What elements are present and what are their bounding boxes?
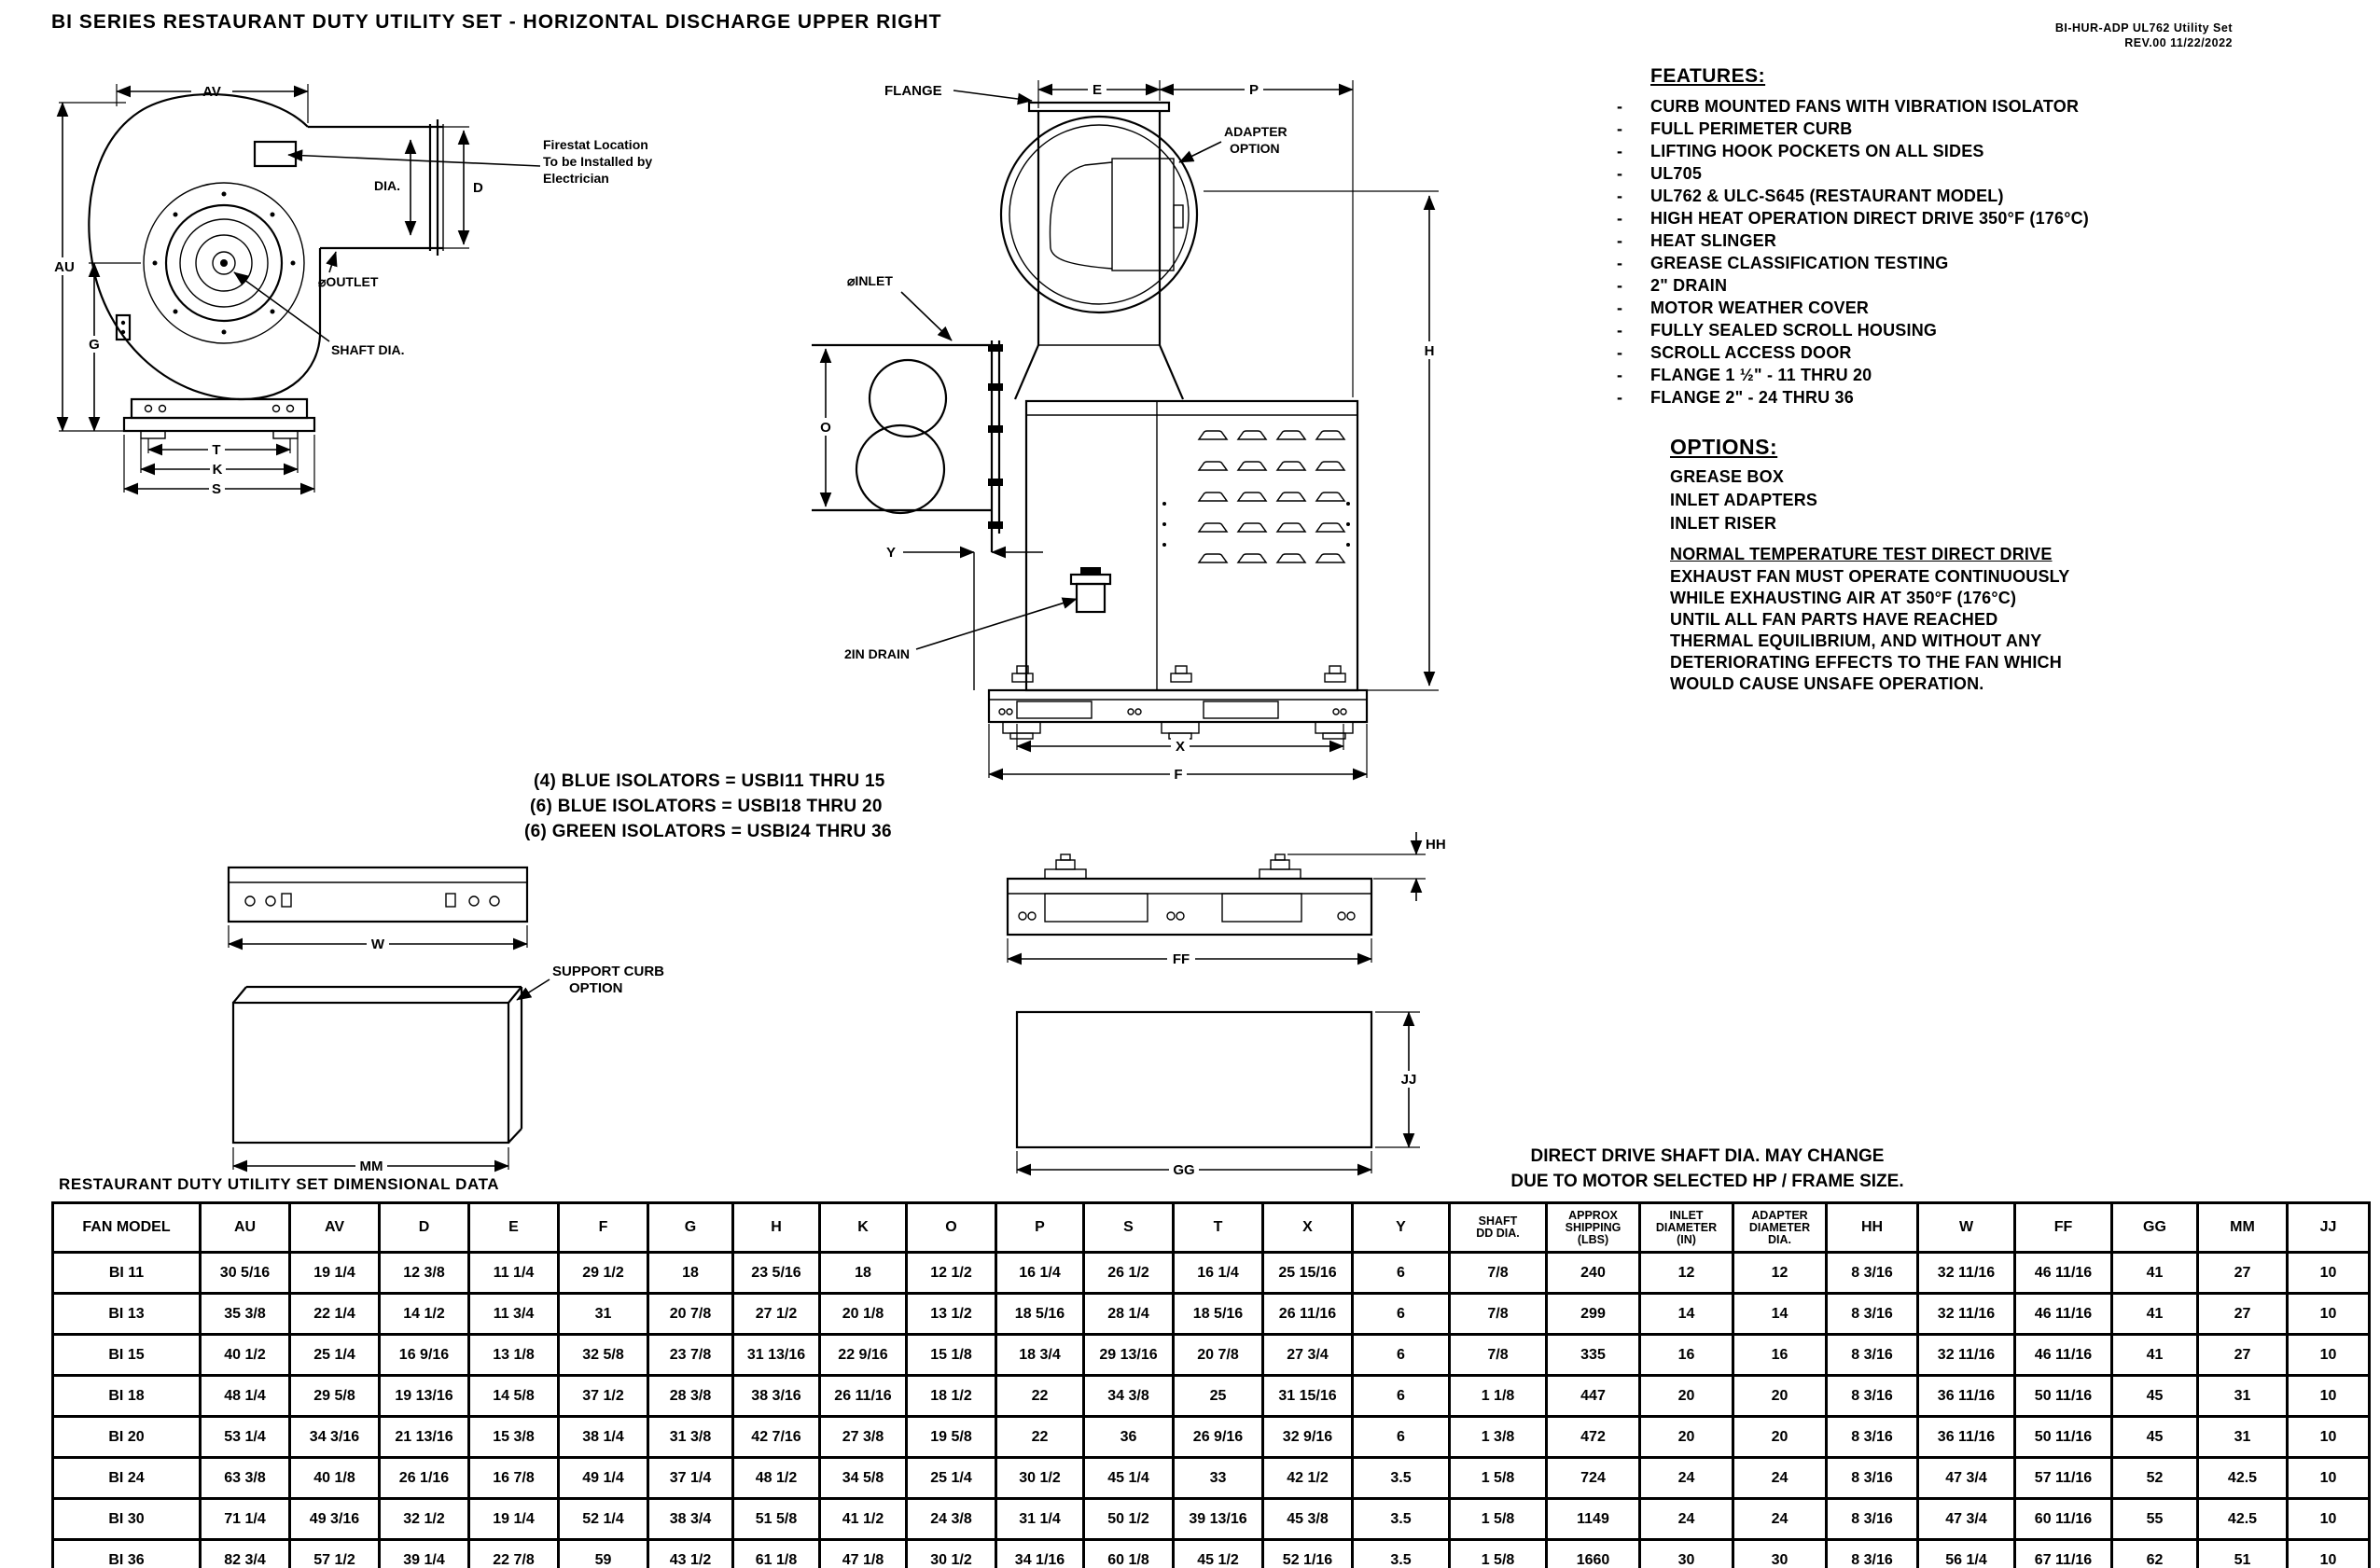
table-caption: RESTAURANT DUTY UTILITY SET DIMENSIONAL …: [59, 1175, 499, 1194]
feature-item: CURB MOUNTED FANS WITH VIBRATION ISOLATO…: [1650, 95, 2079, 118]
col-header-mm: MM: [2198, 1203, 2288, 1253]
table-cell: 16: [1733, 1335, 1827, 1376]
table-cell: 42.5: [2198, 1499, 2288, 1540]
table-cell: 27 3/8: [820, 1417, 907, 1458]
table-cell: 8 3/16: [1827, 1540, 1918, 1568]
table-cell: 6: [1353, 1335, 1450, 1376]
table-cell: 43 1/2: [648, 1540, 733, 1568]
feature-item: GREASE CLASSIFICATION TESTING: [1650, 252, 1948, 274]
temperature-test-note: NORMAL TEMPERATURE TEST DIRECT DRIVE EXH…: [1670, 545, 2286, 695]
flange-label: FLANGE: [884, 83, 942, 99]
table-cell: 28 1/4: [1084, 1294, 1174, 1335]
table-cell: 46 11/16: [2015, 1294, 2112, 1335]
table-cell: 10: [2288, 1253, 2370, 1294]
table-cell: 26 1/2: [1084, 1253, 1174, 1294]
fan-model-cell: BI 24: [53, 1458, 201, 1499]
table-cell: 299: [1547, 1294, 1640, 1335]
col-header-f: F: [559, 1203, 648, 1253]
table-cell: 41: [2112, 1253, 2198, 1294]
table-cell: 19 1/4: [290, 1253, 380, 1294]
table-cell: 53 1/4: [201, 1417, 290, 1458]
inlet-label: ⌀INLET: [847, 273, 893, 288]
table-cell: 51: [2198, 1540, 2288, 1568]
table-cell: 8 3/16: [1827, 1294, 1918, 1335]
note-line: EXHAUST FAN MUST OPERATE CONTINUOUSLY: [1670, 566, 2286, 588]
dim-label-o: O: [820, 420, 831, 436]
dim-h: H: [1204, 191, 1441, 690]
table-cell: 23 5/16: [733, 1253, 820, 1294]
note-line: DETERIORATING EFFECTS TO THE FAN WHICH: [1670, 652, 2286, 673]
table-cell: 1 5/8: [1450, 1499, 1547, 1540]
dim-label-h: H: [1425, 343, 1435, 359]
table-cell: 26 11/16: [820, 1376, 907, 1417]
feature-item: HIGH HEAT OPERATION DIRECT DRIVE 350°F (…: [1650, 207, 2089, 229]
bullet-dash: [1617, 140, 1650, 162]
fan-model-cell: BI 11: [53, 1253, 201, 1294]
table-cell: 45: [2112, 1417, 2198, 1458]
table-cell: 1149: [1547, 1499, 1640, 1540]
feature-item: FULLY SEALED SCROLL HOUSING: [1650, 319, 1937, 341]
bullet-dash: [1617, 297, 1650, 319]
table-cell: 26 9/16: [1174, 1417, 1263, 1458]
table-cell: 57 1/2: [290, 1540, 380, 1568]
dim-label-p: P: [1249, 82, 1259, 98]
table-cell: 8 3/16: [1827, 1335, 1918, 1376]
table-cell: 1 5/8: [1450, 1458, 1547, 1499]
bullet-dash: [1617, 162, 1650, 185]
table-cell: 1 3/8: [1450, 1417, 1547, 1458]
table-row: BI 3682 3/457 1/239 1/422 7/85943 1/261 …: [53, 1540, 2370, 1568]
bullet-dash: [1617, 341, 1650, 364]
col-header-gg: GG: [2112, 1203, 2198, 1253]
table-cell: 71 1/4: [201, 1499, 290, 1540]
table-cell: 50 11/16: [2015, 1376, 2112, 1417]
col-header-p: P: [996, 1203, 1084, 1253]
table-cell: 32 11/16: [1918, 1294, 2015, 1335]
table-cell: 6: [1353, 1376, 1450, 1417]
table-cell: 41 1/2: [820, 1499, 907, 1540]
table-cell: 60 11/16: [2015, 1499, 2112, 1540]
table-cell: 15 1/8: [907, 1335, 996, 1376]
table-cell: 10: [2288, 1417, 2370, 1458]
table-cell: 14: [1640, 1294, 1733, 1335]
table-cell: 26 1/16: [380, 1458, 469, 1499]
table-cell: 30 1/2: [996, 1458, 1084, 1499]
table-cell: 26 11/16: [1263, 1294, 1353, 1335]
table-cell: 335: [1547, 1335, 1640, 1376]
table-cell: 67 11/16: [2015, 1540, 2112, 1568]
col-header-o: O: [907, 1203, 996, 1253]
table-cell: 27 1/2: [733, 1294, 820, 1335]
table-cell: 11 1/4: [469, 1253, 559, 1294]
fan-model-cell: BI 30: [53, 1499, 201, 1540]
table-cell: 31: [2198, 1376, 2288, 1417]
table-cell: 12: [1640, 1253, 1733, 1294]
table-cell: 48 1/2: [733, 1458, 820, 1499]
table-cell: 27: [2198, 1253, 2288, 1294]
table-cell: 45: [2112, 1376, 2198, 1417]
dim-jj: JJ: [1375, 1012, 1422, 1147]
table-cell: 16 7/8: [469, 1458, 559, 1499]
table-cell: 240: [1547, 1253, 1640, 1294]
table-cell: 25: [1174, 1376, 1263, 1417]
feature-item: FLANGE 2" - 24 THRU 36: [1650, 386, 1854, 409]
dim-label-k: K: [213, 462, 223, 478]
bullet-dash: [1617, 252, 1650, 274]
table-cell: 32 11/16: [1918, 1335, 2015, 1376]
note-line: THERMAL EQUILIBRIUM, AND WITHOUT ANY: [1670, 631, 2286, 652]
table-cell: 32 9/16: [1263, 1417, 1353, 1458]
support-curb-callout: SUPPORT CURB OPTION: [517, 964, 664, 1000]
table-cell: 6: [1353, 1294, 1450, 1335]
table-cell: 8 3/16: [1827, 1376, 1918, 1417]
table-cell: 6: [1353, 1417, 1450, 1458]
drain-label: 2IN DRAIN: [844, 646, 910, 661]
col-header-h: H: [733, 1203, 820, 1253]
note-line: UNTIL ALL FAN PARTS HAVE REACHED: [1670, 609, 2286, 631]
table-cell: 36: [1084, 1417, 1174, 1458]
table-cell: 31 1/4: [996, 1499, 1084, 1540]
col-header-adapter-diameter: ADAPTER DIAMETER DIA.: [1733, 1203, 1827, 1253]
table-cell: 14: [1733, 1294, 1827, 1335]
table-cell: 40 1/8: [290, 1458, 380, 1499]
dim-d: D: [443, 127, 483, 248]
dim-label-x: X: [1176, 739, 1185, 755]
document-id: BI-HUR-ADP UL762 Utility Set: [2055, 21, 2233, 35]
fan-model-cell: BI 36: [53, 1540, 201, 1568]
table-cell: 8 3/16: [1827, 1253, 1918, 1294]
outlet-label: ⌀OUTLET: [318, 274, 379, 289]
table-row: BI 1335 3/822 1/414 1/211 3/43120 7/827 …: [53, 1294, 2370, 1335]
bullet-dash: [1617, 319, 1650, 341]
table-cell: 32 11/16: [1918, 1253, 2015, 1294]
table-cell: 3.5: [1353, 1499, 1450, 1540]
table-cell: 29 13/16: [1084, 1335, 1174, 1376]
table-cell: 36 11/16: [1918, 1376, 2015, 1417]
unit-body: [1026, 401, 1357, 690]
features-section: FEATURES: CURB MOUNTED FANS WITH VIBRATI…: [1617, 65, 2270, 409]
dim-label-w: W: [371, 937, 385, 952]
dim-mm: MM: [233, 1147, 508, 1174]
table-cell: 7/8: [1450, 1335, 1547, 1376]
table-cell: 25 1/4: [290, 1335, 380, 1376]
dim-e: E: [1038, 80, 1160, 108]
feature-item: LIFTING HOOK POCKETS ON ALL SIDES: [1650, 140, 1984, 162]
table-cell: 27: [2198, 1335, 2288, 1376]
table-cell: 23 7/8: [648, 1335, 733, 1376]
table-cell: 35 3/8: [201, 1294, 290, 1335]
features-heading: FEATURES:: [1650, 65, 2270, 88]
table-cell: 46 11/16: [2015, 1253, 2112, 1294]
table-cell: 7/8: [1450, 1294, 1547, 1335]
fan-model-cell: BI 15: [53, 1335, 201, 1376]
document-revision: REV.00 11/22/2022: [2055, 35, 2233, 50]
table-cell: 20 1/8: [820, 1294, 907, 1335]
table-cell: 55: [2112, 1499, 2198, 1540]
table-cell: 13 1/8: [469, 1335, 559, 1376]
dim-gg: GG: [1017, 1151, 1371, 1178]
dim-label-d: D: [473, 180, 483, 196]
note-line: WHILE EXHAUSTING AIR AT 350°F (176°C): [1670, 588, 2286, 609]
table-cell: 14 5/8: [469, 1376, 559, 1417]
firestat-callout: Firestat Location To be Installed by Ele…: [255, 137, 652, 186]
table-cell: 19 13/16: [380, 1376, 469, 1417]
table-cell: 49 1/4: [559, 1458, 648, 1499]
table-cell: 42 1/2: [1263, 1458, 1353, 1499]
shaft-dia-label: SHAFT DIA.: [331, 342, 405, 357]
col-header-inlet-diameter: INLET DIAMETER (IN): [1640, 1203, 1733, 1253]
col-header-t: T: [1174, 1203, 1263, 1253]
inlet-callout: ⌀INLET: [847, 273, 952, 340]
louver-vents: [1199, 431, 1344, 562]
table-cell: 46 11/16: [2015, 1335, 2112, 1376]
table-cell: 8 3/16: [1827, 1417, 1918, 1458]
firestat-label-2: To be Installed by: [543, 154, 652, 169]
table-cell: 38 3/4: [648, 1499, 733, 1540]
table-cell: 31 13/16: [733, 1335, 820, 1376]
table-header-row: FAN MODEL AU AV D E F G H K O P S T X Y …: [53, 1203, 2370, 1253]
table-cell: 7/8: [1450, 1253, 1547, 1294]
table-cell: 28 3/8: [648, 1376, 733, 1417]
table-cell: 37 1/2: [559, 1376, 648, 1417]
table-cell: 57 11/16: [2015, 1458, 2112, 1499]
dim-label-jj: JJ: [1401, 1072, 1417, 1088]
adapter-option-label-2: OPTION: [1230, 141, 1280, 156]
table-cell: 472: [1547, 1417, 1640, 1458]
table-cell: 30: [1733, 1540, 1827, 1568]
dim-label-e: E: [1093, 82, 1102, 98]
col-header-fan-model: FAN MODEL: [53, 1203, 201, 1253]
table-cell: 45 3/8: [1263, 1499, 1353, 1540]
col-header-ff: FF: [2015, 1203, 2112, 1253]
table-cell: 10: [2288, 1499, 2370, 1540]
table-cell: 47 1/8: [820, 1540, 907, 1568]
table-cell: 22: [996, 1376, 1084, 1417]
table-cell: 29 5/8: [290, 1376, 380, 1417]
table-cell: 32 5/8: [559, 1335, 648, 1376]
table-cell: 20: [1640, 1376, 1733, 1417]
table-cell: 18: [820, 1253, 907, 1294]
col-header-jj: JJ: [2288, 1203, 2370, 1253]
inlet-assembly: [812, 340, 1003, 552]
table-cell: 16 1/4: [1174, 1253, 1263, 1294]
fan-side-view-drawing: AV: [51, 65, 574, 508]
feature-item: UL705: [1650, 162, 1702, 185]
table-cell: 38 1/4: [559, 1417, 648, 1458]
bullet-dash: [1617, 95, 1650, 118]
isolator-feet: [1045, 854, 1301, 879]
drain-callout: 2IN DRAIN: [844, 599, 1077, 661]
table-cell: 10: [2288, 1335, 2370, 1376]
support-curb-drawing: W SUPPORT CURB OPTION MM: [215, 840, 756, 1185]
support-curb-label-1: SUPPORT CURB: [552, 964, 664, 979]
table-cell: 12 3/8: [380, 1253, 469, 1294]
table-cell: 36 11/16: [1918, 1417, 2015, 1458]
dim-label-dia: DIA.: [374, 178, 400, 193]
adapter-option-label-1: ADAPTER: [1224, 124, 1287, 139]
col-header-shaft-dd-dia: SHAFT DD DIA.: [1450, 1203, 1547, 1253]
table-cell: 13 1/2: [907, 1294, 996, 1335]
table-cell: 18 5/16: [996, 1294, 1084, 1335]
fan-model-cell: BI 13: [53, 1294, 201, 1335]
shaft-dia-note-line-1: DIRECT DRIVE SHAFT DIA. MAY CHANGE: [1437, 1144, 1978, 1169]
curb-rail-drawing: HH FF GG JJ: [970, 821, 1474, 1222]
fan-front-view-drawing: FLANGE E P: [802, 65, 1465, 802]
table-cell: 37 1/4: [648, 1458, 733, 1499]
table-cell: 41: [2112, 1294, 2198, 1335]
fan-model-cell: BI 20: [53, 1417, 201, 1458]
table-cell: 20: [1640, 1417, 1733, 1458]
col-header-s: S: [1084, 1203, 1174, 1253]
table-cell: 19 5/8: [907, 1417, 996, 1458]
table-cell: 447: [1547, 1376, 1640, 1417]
col-header-e: E: [469, 1203, 559, 1253]
option-item: INLET ADAPTERS: [1670, 489, 2276, 512]
curb-front-box: [1017, 1012, 1371, 1147]
table-cell: 24: [1733, 1499, 1827, 1540]
table-cell: 27 3/4: [1263, 1335, 1353, 1376]
table-row: BI 2053 1/434 3/1621 13/1615 3/838 1/431…: [53, 1417, 2370, 1458]
col-header-av: AV: [290, 1203, 380, 1253]
col-header-d: D: [380, 1203, 469, 1253]
table-cell: 8 3/16: [1827, 1499, 1918, 1540]
table-cell: 1 5/8: [1450, 1540, 1547, 1568]
table-cell: 12: [1733, 1253, 1827, 1294]
table-cell: 47 3/4: [1918, 1499, 2015, 1540]
col-header-approx-shipping: APPROX SHIPPING (LBS): [1547, 1203, 1640, 1253]
col-header-au: AU: [201, 1203, 290, 1253]
table-cell: 19 1/4: [469, 1499, 559, 1540]
feature-item: 2" DRAIN: [1650, 274, 1727, 297]
option-item: GREASE BOX: [1670, 465, 2276, 489]
base-rail: [1008, 879, 1371, 935]
table-cell: 45 1/2: [1174, 1540, 1263, 1568]
bullet-dash: [1617, 118, 1650, 140]
dim-t: T: [148, 438, 290, 458]
table-body: BI 1130 5/1619 1/412 3/811 1/429 1/21823…: [53, 1253, 2370, 1568]
adapter-option-callout: ADAPTER OPTION: [1179, 124, 1287, 162]
table-cell: 34 3/16: [290, 1417, 380, 1458]
table-cell: 22: [996, 1417, 1084, 1458]
table-cell: 10: [2288, 1458, 2370, 1499]
bullet-dash: [1617, 364, 1650, 386]
col-header-y: Y: [1353, 1203, 1450, 1253]
table-cell: 45 1/4: [1084, 1458, 1174, 1499]
table-cell: 15 3/8: [469, 1417, 559, 1458]
table-cell: 20 7/8: [1174, 1335, 1263, 1376]
options-section: OPTIONS: GREASE BOX INLET ADAPTERS INLET…: [1670, 435, 2276, 535]
table-cell: 24 3/8: [907, 1499, 996, 1540]
drain-fitting: [1071, 567, 1110, 612]
firestat-box: [255, 142, 296, 166]
dim-label-mm: MM: [360, 1159, 383, 1174]
feature-item: SCROLL ACCESS DOOR: [1650, 341, 1852, 364]
dim-label-g: G: [89, 337, 100, 353]
table-cell: 6: [1353, 1253, 1450, 1294]
table-cell: 1 1/8: [1450, 1376, 1547, 1417]
table-cell: 48 1/4: [201, 1376, 290, 1417]
table-cell: 18: [648, 1253, 733, 1294]
dim-label-ff: FF: [1173, 951, 1190, 967]
table-cell: 39 1/4: [380, 1540, 469, 1568]
table-cell: 24: [1733, 1458, 1827, 1499]
table-cell: 16 9/16: [380, 1335, 469, 1376]
table-cell: 25 1/4: [907, 1458, 996, 1499]
fan-base: [124, 399, 314, 438]
feature-item: FULL PERIMETER CURB: [1650, 118, 1852, 140]
table-cell: 34 3/8: [1084, 1376, 1174, 1417]
table-cell: 30: [1640, 1540, 1733, 1568]
table-cell: 27: [2198, 1294, 2288, 1335]
table-cell: 29 1/2: [559, 1253, 648, 1294]
table-cell: 34 5/8: [820, 1458, 907, 1499]
table-cell: 1660: [1547, 1540, 1640, 1568]
table-cell: 724: [1547, 1458, 1640, 1499]
dim-hh: HH: [1287, 832, 1446, 901]
table-cell: 31: [2198, 1417, 2288, 1458]
isolator-note-1: (4) BLUE ISOLATORS = USBI11 THRU 15: [524, 769, 1028, 794]
table-cell: 34 1/16: [996, 1540, 1084, 1568]
table-cell: 22 7/8: [469, 1540, 559, 1568]
dim-label-s: S: [212, 481, 221, 497]
table-cell: 31 3/8: [648, 1417, 733, 1458]
table-cell: 3.5: [1353, 1540, 1450, 1568]
table-cell: 52: [2112, 1458, 2198, 1499]
shaft-dia-note-line-2: DUE TO MOTOR SELECTED HP / FRAME SIZE.: [1437, 1169, 1978, 1194]
table-cell: 47 3/4: [1918, 1458, 2015, 1499]
flange-callout: FLANGE: [884, 83, 1032, 101]
table-cell: 41: [2112, 1335, 2198, 1376]
table-cell: 31 15/16: [1263, 1376, 1353, 1417]
dim-label-y: Y: [886, 545, 896, 561]
bullet-dash: [1617, 229, 1650, 252]
table-row: BI 1848 1/429 5/819 13/1614 5/837 1/228 …: [53, 1376, 2370, 1417]
drawing-sheet: BI SERIES RESTAURANT DUTY UTILITY SET - …: [0, 0, 2380, 1568]
table-cell: 16: [1640, 1335, 1733, 1376]
page-title: BI SERIES RESTAURANT DUTY UTILITY SET - …: [51, 11, 941, 34]
table-cell: 11 3/4: [469, 1294, 559, 1335]
curb-rail: [229, 867, 527, 922]
curb-box: [233, 987, 522, 1143]
dim-x: X: [1017, 724, 1343, 755]
table-row: BI 3071 1/449 3/1632 1/219 1/452 1/438 3…: [53, 1499, 2370, 1540]
support-curb-label-2: OPTION: [569, 980, 623, 996]
adapter-ring: [1001, 117, 1197, 312]
table-cell: 51 5/8: [733, 1499, 820, 1540]
table-cell: 61 1/8: [733, 1540, 820, 1568]
bullet-dash: [1617, 274, 1650, 297]
table-cell: 31: [559, 1294, 648, 1335]
table-cell: 22 1/4: [290, 1294, 380, 1335]
option-item: INLET RISER: [1670, 512, 2276, 535]
table-cell: 30 5/16: [201, 1253, 290, 1294]
dim-label-hh: HH: [1426, 837, 1446, 853]
table-cell: 59: [559, 1540, 648, 1568]
table-cell: 42 7/16: [733, 1417, 820, 1458]
table-cell: 62: [2112, 1540, 2198, 1568]
col-header-g: G: [648, 1203, 733, 1253]
table-cell: 56 1/4: [1918, 1540, 2015, 1568]
dim-ff: FF: [1008, 938, 1371, 967]
table-cell: 33: [1174, 1458, 1263, 1499]
table-cell: 21 13/16: [380, 1417, 469, 1458]
table-cell: 25 15/16: [1263, 1253, 1353, 1294]
outlet-callout: ⌀OUTLET: [318, 252, 379, 289]
shaft-dia-note: DIRECT DRIVE SHAFT DIA. MAY CHANGE DUE T…: [1437, 1144, 1978, 1194]
table-cell: 39 13/16: [1174, 1499, 1263, 1540]
bullet-dash: [1617, 386, 1650, 409]
table-cell: 50 11/16: [2015, 1417, 2112, 1458]
